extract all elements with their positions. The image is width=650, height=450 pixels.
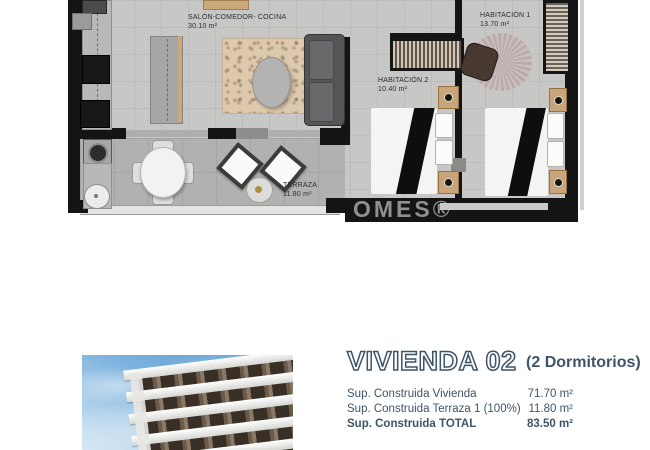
listing-sheet: OMES®	[0, 0, 650, 450]
oven	[80, 100, 110, 128]
bed-hab2	[370, 107, 438, 195]
pillows-hab2	[435, 113, 453, 165]
bed-throw	[506, 107, 546, 197]
room-name: SALÓN-COMEDOR- COCINA	[188, 14, 286, 21]
terrace-dining-table	[140, 147, 186, 198]
surface-row-total: Sup. Construida TOTAL 83.50 m²	[347, 417, 573, 432]
sofa	[304, 34, 345, 126]
wall-bottom-bedrooms: OMES®	[345, 198, 578, 222]
dining-table-cropped	[203, 0, 249, 10]
bed-throw	[395, 107, 436, 195]
unit-details: VIVIENDA 02 (2 Dormitorios) Sup. Constru…	[347, 346, 587, 432]
room-label-hab1: HABITACIÓN 1 13.70 m²	[480, 11, 531, 29]
kitchen-cabinet	[82, 0, 107, 14]
unit-subtitle: (2 Dormitorios)	[526, 354, 641, 372]
nightstand	[438, 86, 459, 109]
watermark-text: OMES®	[353, 198, 453, 222]
nightstand	[549, 170, 567, 194]
terrace-pillar	[236, 128, 268, 139]
room-area: 13.70 m²	[480, 20, 531, 29]
kitchen-window-sill	[72, 13, 92, 30]
island-wood-edge	[178, 36, 182, 122]
room-name: HABITACIÓN 2	[378, 77, 429, 84]
terrace-wall-seg-2	[208, 128, 236, 139]
surface-label: Sup. Construida Vivienda	[347, 387, 477, 402]
wall-connector-block	[451, 158, 466, 172]
unit-title-line: VIVIENDA 02 (2 Dormitorios)	[347, 346, 587, 377]
coffee-table	[252, 57, 291, 108]
surface-table: Sup. Construida Vivienda 71.70 m² Sup. C…	[347, 387, 573, 432]
floor-plan: OMES®	[68, 0, 585, 225]
room-name: HABITACIÓN 1	[480, 12, 531, 19]
washing-machine	[83, 139, 112, 165]
terrace-wall-seg-3	[320, 128, 345, 145]
surface-value: 83.50 m²	[527, 417, 573, 432]
room-area: 30.10 m²	[188, 22, 286, 31]
building-render	[123, 355, 293, 450]
wardrobe-hab1	[543, 0, 568, 74]
surface-value: 11.80 m²	[528, 402, 573, 417]
surface-row: Sup. Construida Vivienda 71.70 m²	[347, 387, 573, 402]
room-label-hab2: HABITACIÓN 2 10.40 m²	[378, 76, 429, 94]
room-label-terraza: TERRAZA 11.80 m²	[283, 181, 317, 199]
wall-right-outer-line	[580, 0, 584, 210]
room-label-salon: SALÓN-COMEDOR- COCINA 30.10 m²	[188, 13, 286, 31]
nightstand	[549, 88, 567, 112]
unit-title: VIVIENDA 02	[347, 346, 517, 377]
room-name: TERRAZA	[283, 182, 317, 189]
nightstand	[438, 171, 459, 194]
bed-hab1	[484, 107, 549, 197]
cooktop	[82, 55, 110, 84]
wardrobe-hab2	[390, 38, 464, 71]
surface-label: Sup. Construida TOTAL	[347, 417, 476, 432]
surface-value: 71.70 m²	[528, 387, 573, 402]
building-photo	[82, 355, 293, 450]
railing-corner-right	[326, 198, 345, 213]
terrace-sink	[84, 184, 110, 209]
terrace-side-table	[246, 177, 273, 203]
bottom-window-segment	[440, 203, 548, 210]
terrace-railing	[80, 205, 340, 215]
surface-row: Sup. Construida Terraza 1 (100%) 11.80 m…	[347, 402, 573, 417]
room-area: 10.40 m²	[378, 85, 429, 94]
room-area: 11.80 m²	[283, 190, 317, 199]
pillows-hab1	[547, 113, 564, 167]
surface-label: Sup. Construida Terraza 1 (100%)	[347, 402, 521, 417]
